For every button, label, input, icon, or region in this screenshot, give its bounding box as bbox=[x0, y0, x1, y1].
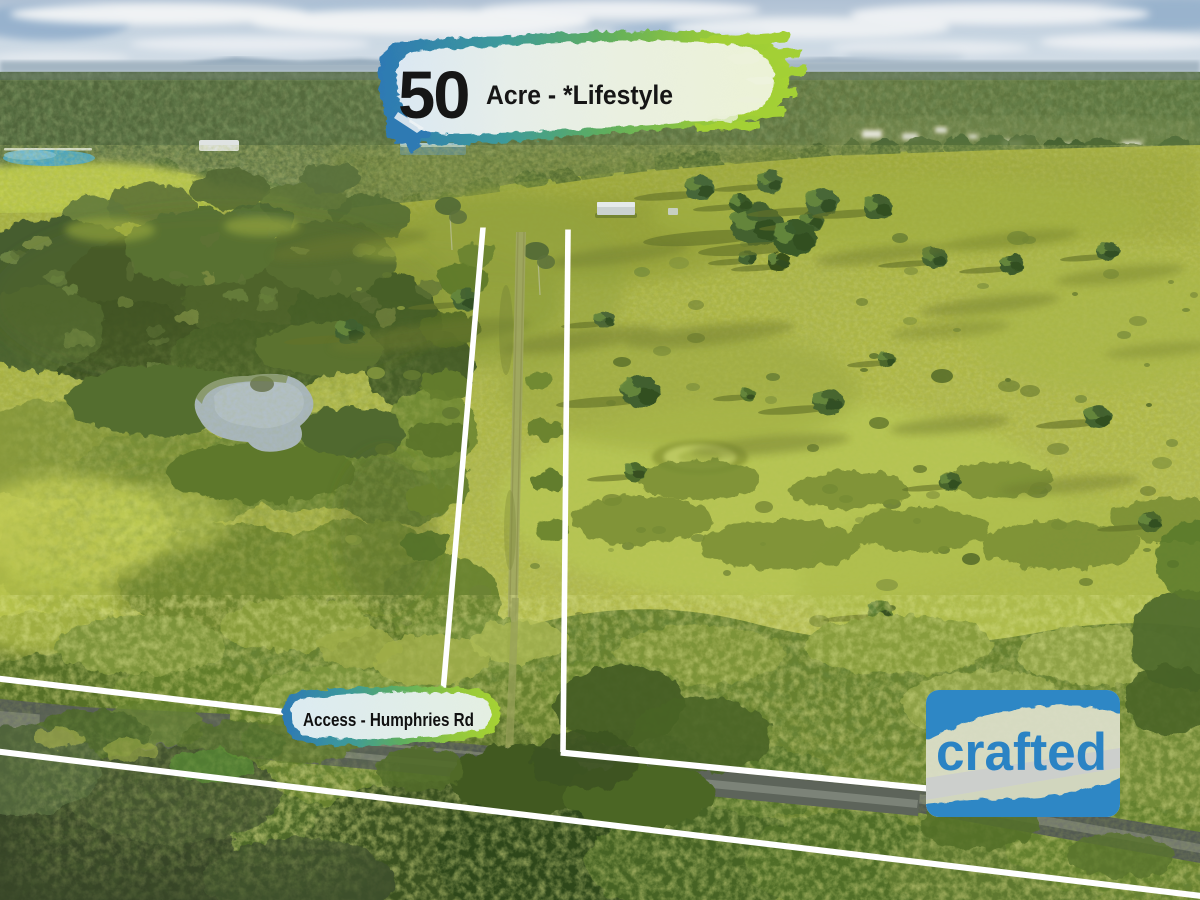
svg-text:50: 50 bbox=[398, 58, 469, 133]
svg-text:crafted: crafted bbox=[936, 723, 1107, 782]
svg-text:Acre - *Lifestyle: Acre - *Lifestyle bbox=[486, 80, 673, 110]
svg-text:Access - Humphries Rd: Access - Humphries Rd bbox=[303, 709, 474, 730]
